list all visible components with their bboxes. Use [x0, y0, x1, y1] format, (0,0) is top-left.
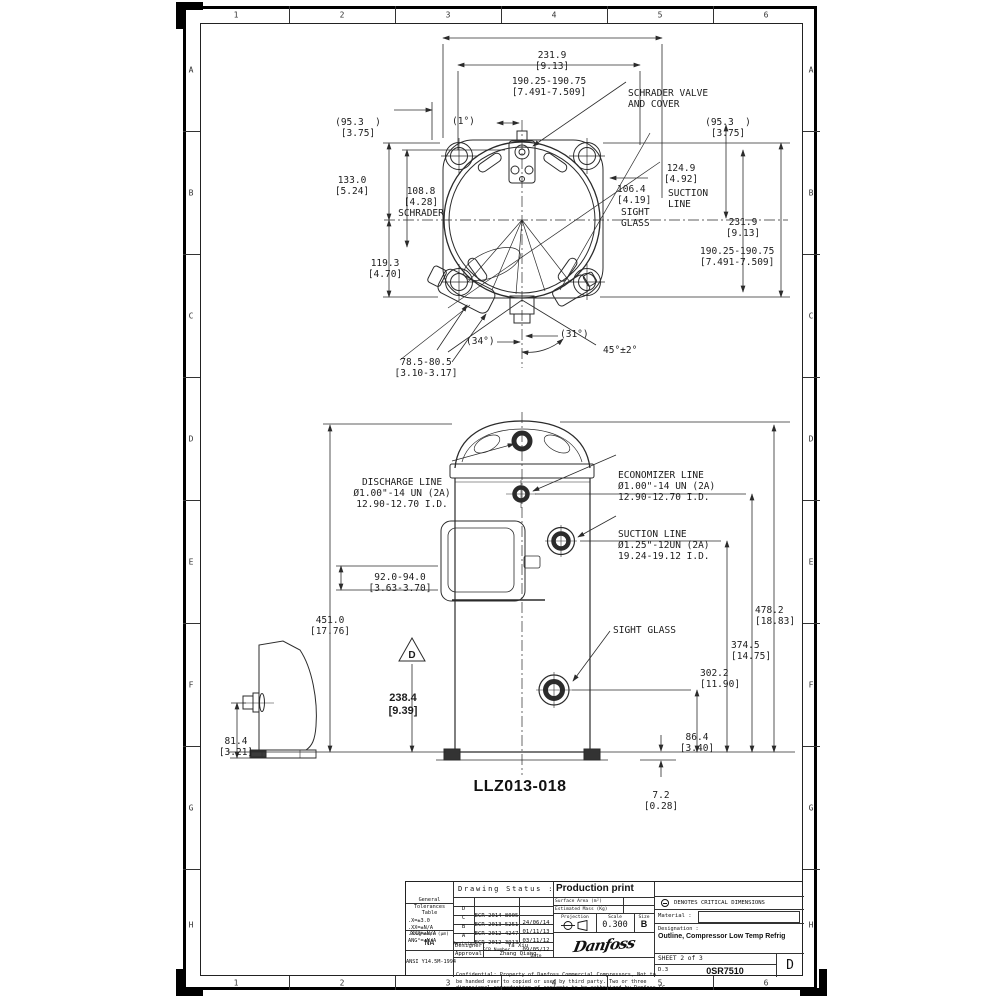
col-label-bottom-6: 6 [764, 979, 769, 988]
material-label: Material : [658, 913, 692, 920]
designation-value: Outline, Compressor Low Temp Refrig [658, 933, 785, 940]
size-value: B [634, 919, 654, 929]
dim-schrader-108: 108.8[4.28]SCHRADER [398, 164, 444, 219]
row-label-left-F: F [189, 681, 194, 690]
dim-451: 451.0[17.76] [310, 593, 350, 637]
drawing-status-value: Production print [556, 883, 634, 894]
trim-mark-bottom-right-v [819, 969, 827, 996]
sight-glass-callout-side: SIGHT GLASS [613, 625, 676, 636]
col-label-top-5: 5 [658, 11, 663, 20]
dim-86: 86.4[3.40] [680, 710, 714, 754]
row-label-right-H: H [809, 921, 814, 930]
dim-ref-right: (95.3 )[3.75] [705, 95, 751, 139]
confidential-note: Confidential: Property of Danfoss Commer… [456, 959, 668, 992]
critical-dimension-icon [661, 899, 669, 907]
row-label-right-C: C [809, 312, 814, 321]
row-label-left-C: C [189, 312, 194, 321]
col-label-bottom-3: 3 [446, 979, 451, 988]
dim-angle-34: (34°) [466, 336, 495, 347]
dim-datum-238: 238.4[9.39] [389, 666, 418, 718]
drawing-status-label: Drawing Status : [458, 885, 554, 894]
dim-190-right: 190.25-190.75[7.491-7.509] [700, 224, 774, 268]
suction-line-callout-side: SUCTION LINEØ1.25"-12UN (2A)19.24-19.12 … [618, 507, 710, 562]
col-label-bottom-2: 2 [340, 979, 345, 988]
row-label-right-A: A [809, 66, 814, 75]
suction-line-callout-top: SUCTIONLINE [668, 166, 708, 210]
dim-302: 302.2[11.90] [700, 646, 740, 690]
projection-label: Projection [554, 915, 596, 921]
model-number-label: LLZ013-018 [473, 778, 566, 796]
engineering-drawing-sheet: 1 2 3 4 5 6 1 2 3 4 5 6 A B C D E F G H … [0, 0, 1000, 1000]
dim-bracket-92: 92.0-94.0[3.63-3.70] [369, 550, 432, 594]
designer-value: Ya Xiu [483, 943, 553, 950]
row-label-left-E: E [189, 558, 194, 567]
designer-label: Designer [455, 943, 482, 950]
approval-value: Zhang Qiang [483, 951, 553, 958]
revision-letter: D [776, 958, 804, 973]
roughness-value: NA [406, 938, 453, 947]
dim-angle-1deg: (1°) [452, 116, 475, 127]
sight-glass-callout-top: SIGHTGLASS [621, 185, 650, 229]
dim-angle-45: 45°±2° [603, 345, 637, 356]
dim-ref-left: (95.3 )[3.75] [335, 95, 381, 139]
row-label-left-B: B [189, 189, 194, 198]
document-number: 0SR7510 [676, 966, 774, 976]
estimated-mass-label: Estimated Mass (Kg) [555, 907, 608, 913]
sheet-number-label: SHEET 2 of 3 [658, 955, 703, 963]
approval-label: Approval [455, 951, 482, 958]
row-label-left-D: D [189, 435, 194, 444]
projection-icon [561, 920, 589, 931]
critical-dimension-note: DENOTES CRITICAL DIMENSIONS [674, 900, 765, 907]
col-label-top-6: 6 [764, 11, 769, 20]
row-label-right-D: D [809, 435, 814, 444]
col-label-top-3: 3 [446, 11, 451, 20]
designation-label: Designation : [658, 926, 699, 933]
discharge-line-callout: DISCHARGE LINEØ1.00"-14 UN (2A)12.90-12.… [353, 455, 450, 510]
col-label-top-2: 2 [340, 11, 345, 20]
title-block: GeneralTolerancesTable .X=±3.0.XX=±N/A.X… [405, 881, 803, 976]
dim-7: 7.2[0.28] [644, 768, 678, 812]
dim-foot-81: 81.4[3.21] [219, 714, 253, 758]
dim-bolt-span: 190.25-190.75[7.491-7.509] [512, 54, 586, 98]
row-label-right-E: E [809, 558, 814, 567]
row-label-left-G: G [189, 804, 194, 813]
col-label-top-4: 4 [552, 11, 557, 20]
col-label-top-1: 1 [234, 11, 239, 20]
row-label-right-B: B [809, 189, 814, 198]
dim-133: 133.0[5.24] [335, 153, 369, 197]
col-label-bottom-1: 1 [234, 979, 239, 988]
dim-foot-78: 78.5-80.5[3.10-3.17] [395, 335, 458, 379]
row-label-left-H: H [189, 921, 194, 930]
doc-small-ref: D.3 [658, 967, 668, 974]
scale-value: 0.300 [596, 920, 634, 930]
dim-angle-31: (31°) [560, 329, 589, 340]
drawing-standard: ANSI Y14.5M-1994 [406, 959, 453, 966]
row-label-right-F: F [809, 681, 814, 690]
row-label-left-A: A [189, 66, 194, 75]
surface-area-label: Surface Area (m²) [555, 899, 602, 905]
schrader-valve-callout: SCHRADER VALVEAND COVER [628, 66, 708, 110]
row-label-right-G: G [809, 804, 814, 813]
economizer-line-callout: ECONOMIZER LINEØ1.00"-14 UN (2A)12.90-12… [618, 448, 715, 503]
danfoss-logo: Danfoss [572, 934, 636, 956]
dim-119: 119.3[4.70] [368, 236, 402, 280]
